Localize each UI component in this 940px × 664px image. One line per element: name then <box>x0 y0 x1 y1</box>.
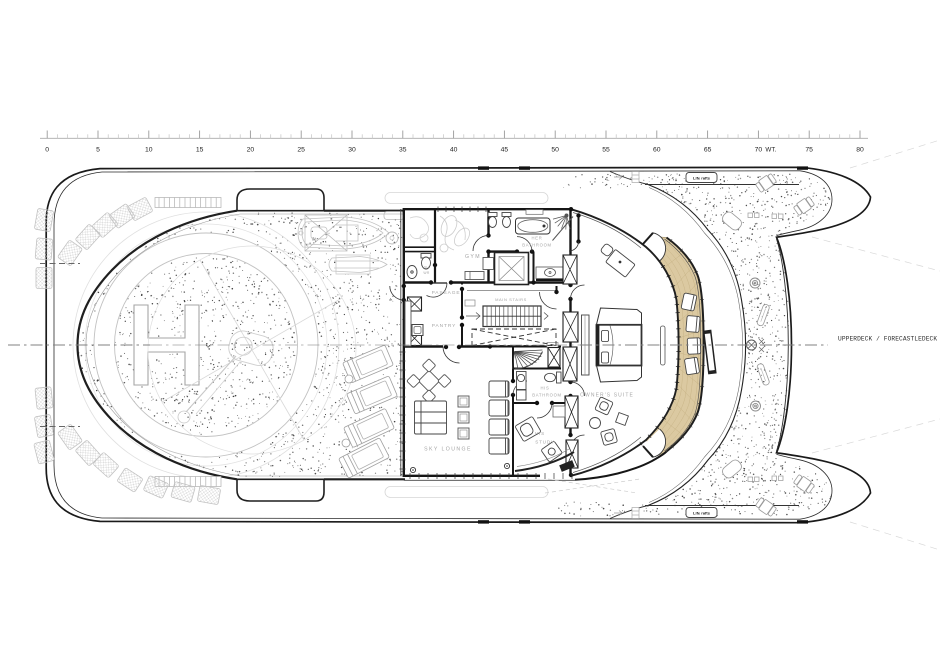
svg-text:MAIN STAIRS: MAIN STAIRS <box>495 297 527 302</box>
svg-text:0: 0 <box>45 147 49 154</box>
svg-text:25: 25 <box>297 147 305 154</box>
svg-text:Life rafts: Life rafts <box>693 511 711 516</box>
svg-text:WR: WR <box>423 271 430 275</box>
svg-text:WT.: WT. <box>765 147 776 154</box>
svg-text:BATHROOM: BATHROOM <box>522 243 551 248</box>
svg-text:35: 35 <box>399 147 407 154</box>
svg-text:BATHROOM: BATHROOM <box>532 393 561 398</box>
svg-text:SH: SH <box>424 266 430 270</box>
svg-text:45: 45 <box>501 147 509 154</box>
svg-text:75: 75 <box>805 147 813 154</box>
svg-text:20: 20 <box>247 147 255 154</box>
svg-text:PASSAGE: PASSAGE <box>432 290 461 296</box>
svg-text:Life rafts: Life rafts <box>693 176 711 181</box>
svg-text:OWNER'S SUITE: OWNER'S SUITE <box>580 393 634 399</box>
svg-text:60: 60 <box>653 147 661 154</box>
svg-text:STUDY: STUDY <box>535 440 555 445</box>
svg-text:PANTRY: PANTRY <box>432 323 456 329</box>
svg-text:GYM: GYM <box>465 254 481 260</box>
svg-text:30: 30 <box>348 147 356 154</box>
svg-text:15: 15 <box>196 147 204 154</box>
svg-text:55: 55 <box>602 147 610 154</box>
svg-text:HIS: HIS <box>540 386 549 391</box>
svg-text:40: 40 <box>450 147 458 154</box>
svg-text:5: 5 <box>96 147 100 154</box>
svg-text:UPPERDECK / FORECASTLEDECK: UPPERDECK / FORECASTLEDECK <box>838 336 937 343</box>
svg-text:80: 80 <box>856 147 864 154</box>
svg-text:SKY LOUNGE: SKY LOUNGE <box>424 447 472 453</box>
svg-text:HIS: HIS <box>535 431 545 436</box>
svg-text:50: 50 <box>551 147 559 154</box>
svg-text:10: 10 <box>145 147 153 154</box>
svg-text:HER: HER <box>532 236 543 241</box>
svg-text:65: 65 <box>704 147 712 154</box>
svg-text:70: 70 <box>755 147 763 154</box>
